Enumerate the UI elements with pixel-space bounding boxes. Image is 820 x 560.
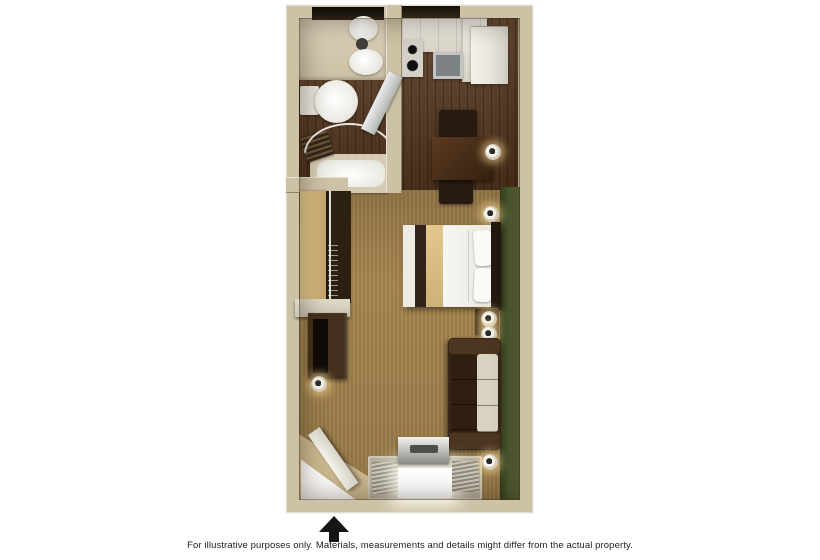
vanity-sink	[349, 49, 383, 75]
wall-lamp	[483, 206, 499, 222]
toilet	[315, 80, 358, 123]
sofa-seat-cushions	[451, 355, 477, 432]
ac-vent	[410, 445, 438, 453]
disclaimer-caption: For illustrative purposes only. Material…	[0, 540, 820, 551]
nightstand-lamp	[481, 311, 497, 327]
window-blinds	[452, 461, 479, 492]
bed-runner	[426, 225, 443, 307]
bed-foot-throw	[415, 225, 426, 307]
floor-lamp	[311, 376, 327, 392]
floor-plan	[286, 5, 533, 513]
window-blinds	[372, 462, 398, 494]
green-accent-wall	[500, 187, 520, 500]
wall-lamp	[482, 454, 498, 470]
sofa-armrest	[449, 433, 500, 449]
bathroom-mirror	[312, 7, 384, 20]
table-lamp	[485, 144, 501, 160]
closet-sliding-door	[300, 191, 326, 303]
television	[313, 319, 328, 373]
kitchen-sink	[433, 52, 463, 79]
refrigerator	[471, 26, 508, 84]
air-conditioner	[398, 437, 449, 463]
sofa-back-cushions	[477, 354, 498, 432]
window	[398, 468, 452, 498]
dining-table	[432, 137, 493, 180]
sofa-armrest	[449, 339, 500, 354]
headboard	[491, 222, 501, 310]
cooktop	[402, 39, 423, 77]
dining-chair	[439, 177, 473, 204]
range-hood	[398, 6, 460, 18]
pillow	[473, 268, 493, 303]
closet-door-track	[329, 191, 331, 303]
entry-arrow-icon	[319, 516, 349, 532]
